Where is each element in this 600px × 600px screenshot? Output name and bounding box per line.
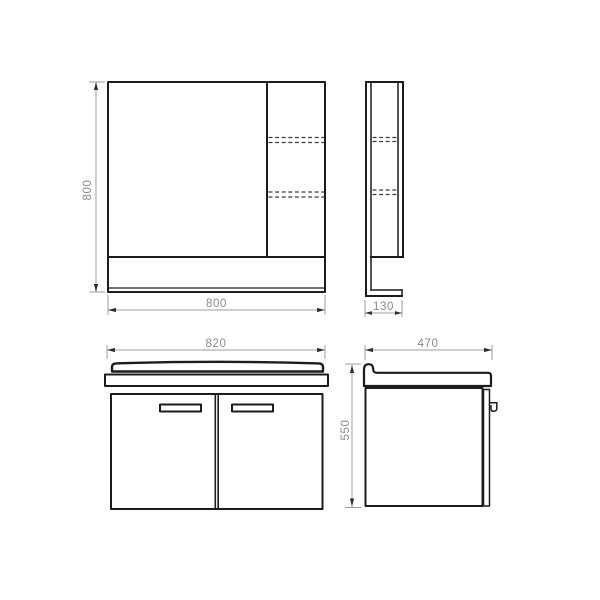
vanity-width-label: 820 [206,338,227,350]
vanity-height-label: 550 [340,420,352,441]
dimension-arrow-icon [317,348,325,352]
bathroom-furniture-drawing: 800 800 [0,0,600,600]
vanity-left-door-handle [160,405,201,412]
mirror-width-label: 800 [206,298,227,310]
mirror-front-body-outline [108,82,325,292]
dimension-arrow-icon [365,311,372,315]
vanity-front-cabinet-body [111,394,323,509]
mirror-depth-dimension: 130 [365,300,402,317]
vanity-side-cabinet-body [366,388,483,506]
vanity-right-door-handle [232,405,273,412]
technical-drawing-canvas: 800 800 [0,0,600,600]
vanity-side-washbasin-profile [364,364,491,386]
vanity-side-back-panel [484,390,490,507]
dimension-arrow-icon [108,308,116,312]
vanity-depth-label: 470 [418,338,439,350]
vanity-width-dimension: 820 [107,338,325,359]
dimension-arrow-icon [317,308,325,312]
mirror-cabinet-front-view: 800 800 [82,82,325,315]
dimension-arrow-icon [94,284,98,292]
vanity-front-washbasin-top [112,362,323,372]
dimension-arrow-icon [350,499,354,507]
dimension-arrow-icon [94,82,98,90]
vanity-height-dimension: 550 [340,364,361,508]
mirror-height-dimension: 800 [82,82,105,292]
mirror-height-label: 800 [82,180,94,201]
vanity-cabinet-side-view: 470 550 [340,338,497,508]
mirror-width-dimension: 800 [108,295,325,315]
vanity-cabinet-front-view: 820 [105,338,328,509]
vanity-front-basin-apron [105,375,328,387]
mirror-depth-label: 130 [373,301,394,313]
vanity-side-wall-hook [490,403,497,412]
dimension-arrow-icon [365,348,373,352]
dimension-arrow-icon [484,348,492,352]
dimension-arrow-icon [350,365,354,373]
dimension-arrow-icon [107,348,115,352]
dimension-arrow-icon [395,311,402,315]
mirror-cabinet-side-view: 130 [365,82,403,317]
vanity-depth-dimension: 470 [365,338,492,360]
